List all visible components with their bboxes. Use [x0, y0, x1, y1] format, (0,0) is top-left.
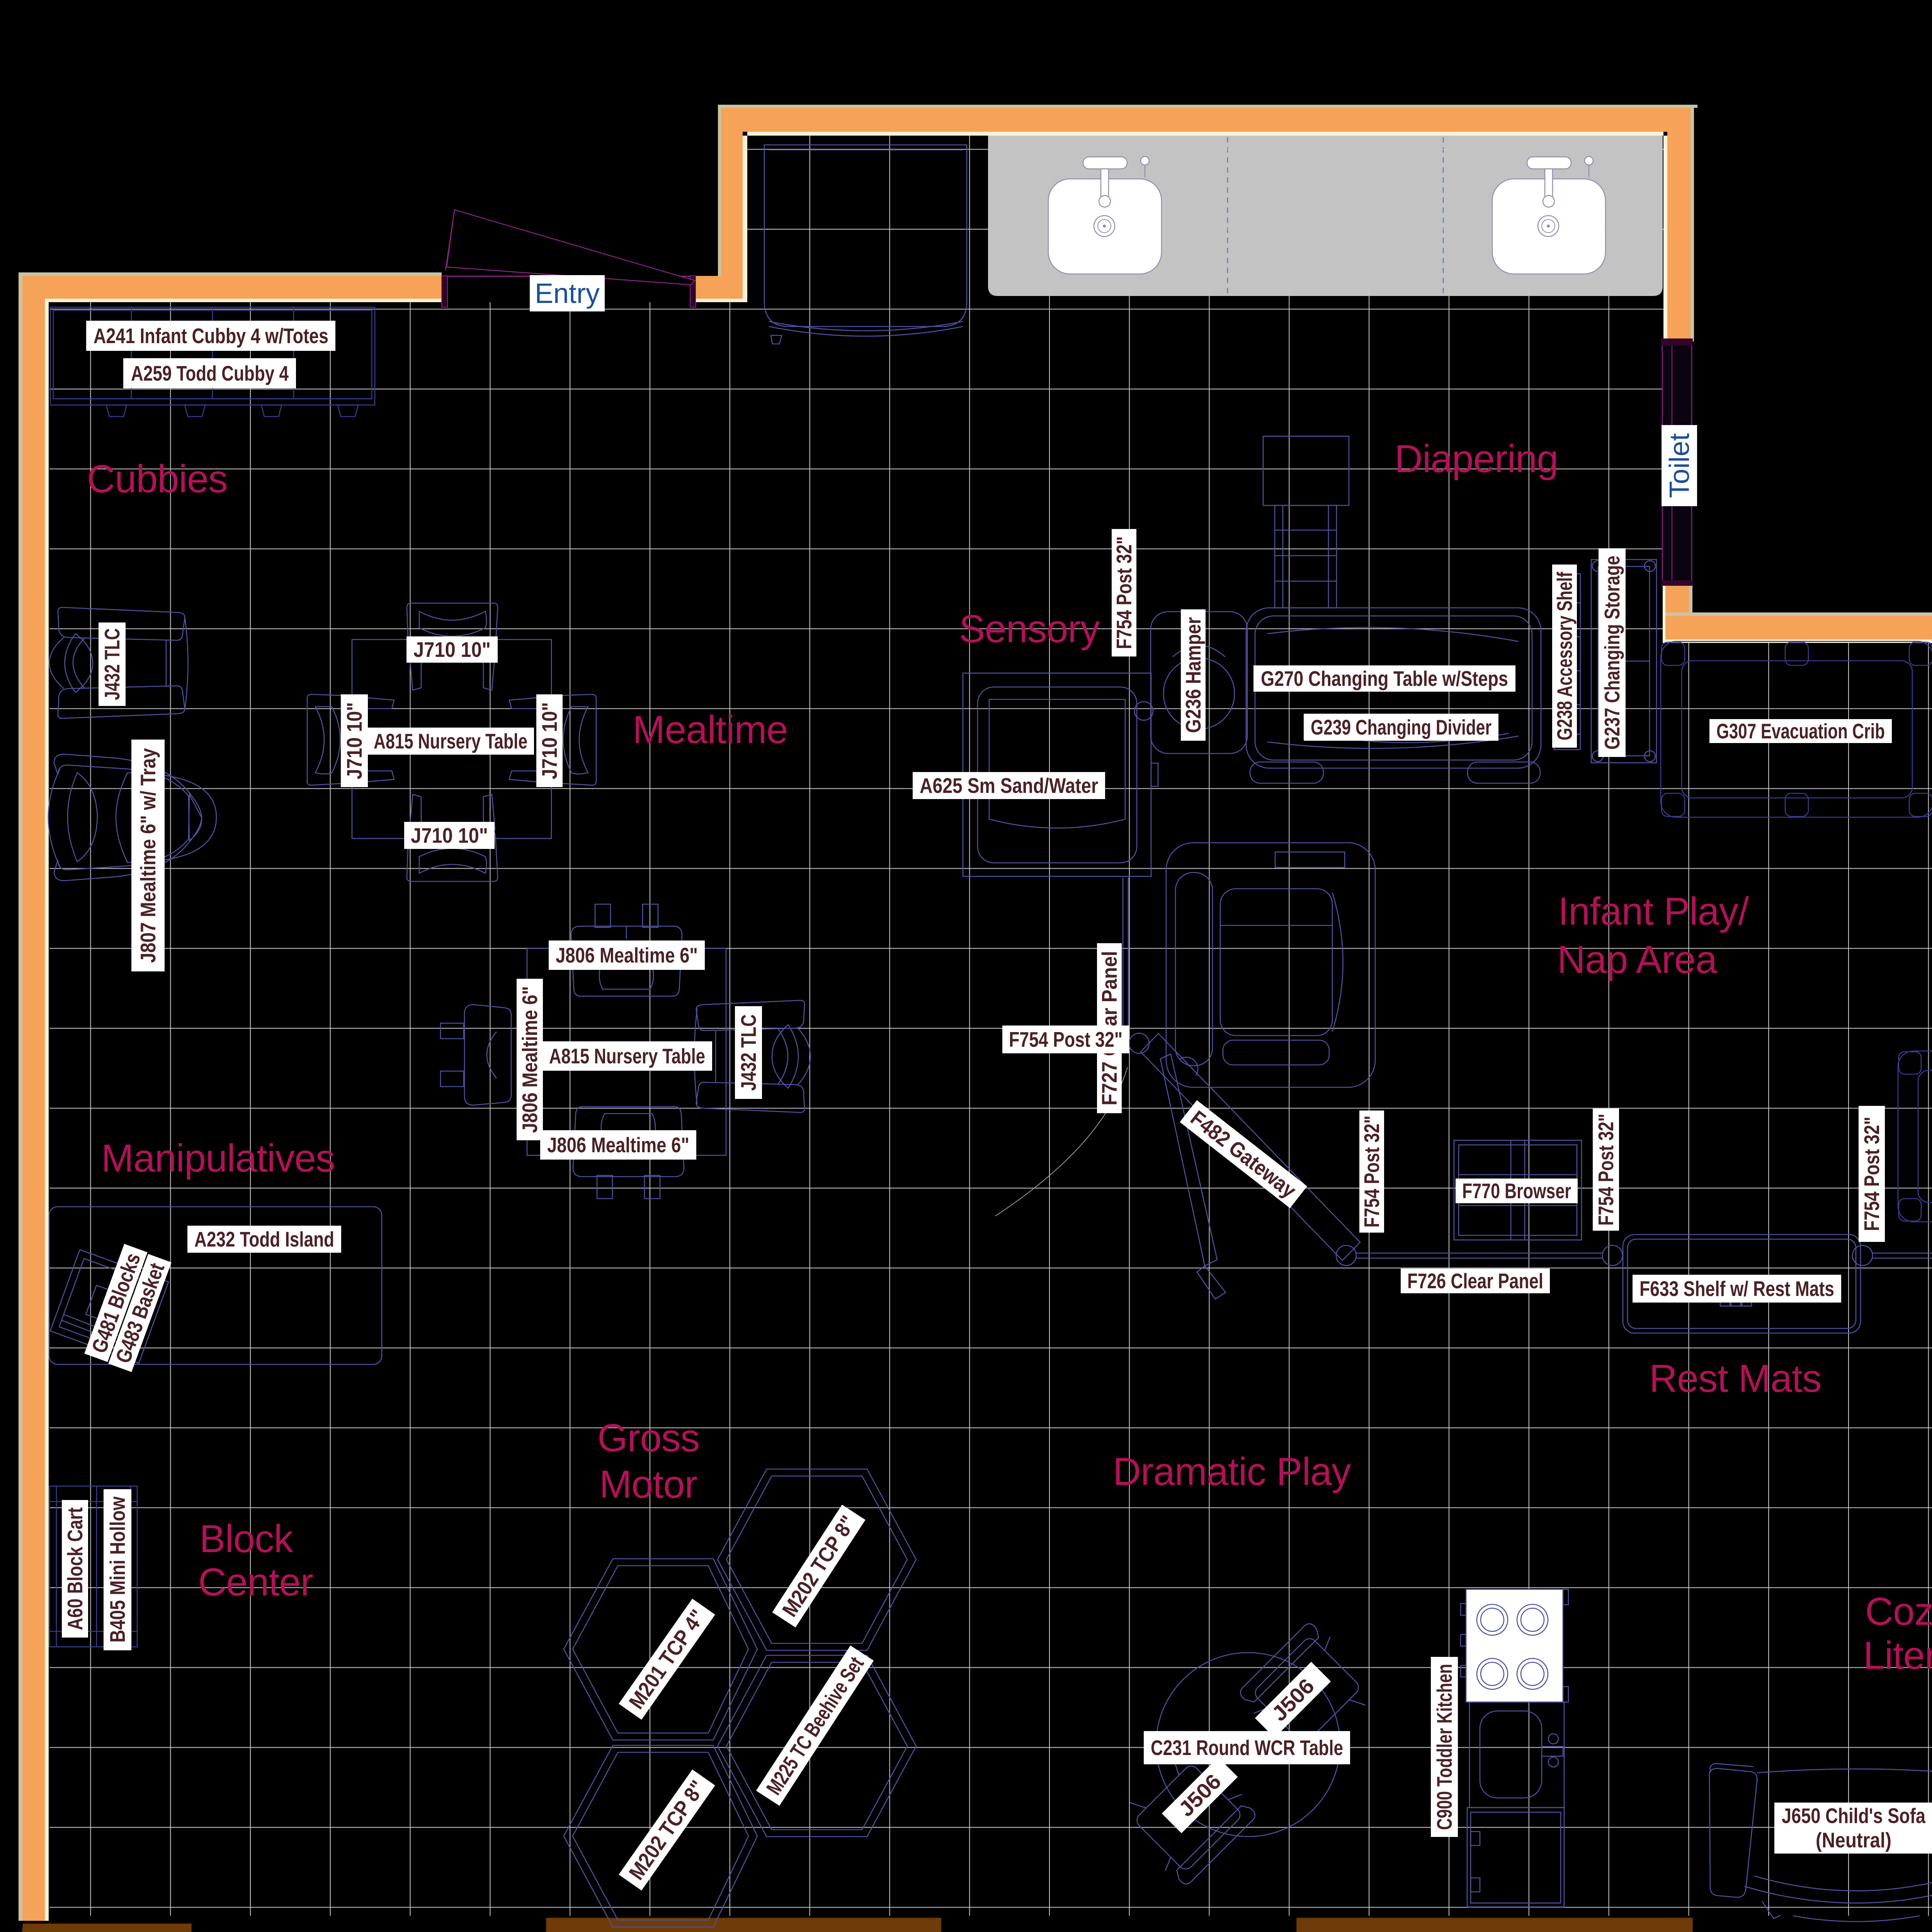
svg-text:J710 10": J710 10"	[342, 702, 366, 779]
svg-text:J650 Child's Sofa: J650 Child's Sofa	[1782, 1804, 1925, 1828]
svg-text:Literacy: Literacy	[1863, 1634, 1932, 1677]
svg-text:B405 Mini Hollow: B405 Mini Hollow	[105, 1497, 129, 1643]
svg-text:A241 Infant Cubby 4 w/Totes: A241 Infant Cubby 4 w/Totes	[94, 324, 328, 348]
svg-text:Rest Mats: Rest Mats	[1649, 1357, 1821, 1400]
svg-text:A259 Todd Cubby 4: A259 Todd Cubby 4	[131, 361, 289, 385]
svg-text:G239 Changing Divider: G239 Changing Divider	[1311, 715, 1492, 739]
svg-text:Sensory: Sensory	[959, 607, 1100, 651]
svg-text:Cubbies: Cubbies	[87, 457, 228, 501]
svg-text:Cozy/: Cozy/	[1865, 1590, 1932, 1633]
svg-text:Center: Center	[198, 1561, 313, 1604]
svg-text:J432 TLC: J432 TLC	[736, 1014, 760, 1091]
svg-text:F726 Clear Panel: F726 Clear Panel	[1407, 1269, 1543, 1293]
svg-text:F754 Post 32": F754 Post 32"	[1860, 1117, 1884, 1231]
svg-text:J710 10": J710 10"	[411, 823, 488, 847]
svg-text:A815 Nursery Table: A815 Nursery Table	[374, 729, 527, 753]
svg-text:Diapering: Diapering	[1395, 437, 1558, 481]
svg-text:G307 Evacuation Crib: G307 Evacuation Crib	[1716, 719, 1885, 743]
svg-text:C900 Toddler Kitchen: C900 Toddler Kitchen	[1432, 1664, 1456, 1830]
svg-text:C231 Round WCR Table: C231 Round WCR Table	[1151, 1736, 1343, 1760]
svg-text:A232 Todd Island: A232 Todd Island	[194, 1227, 334, 1251]
svg-text:A625 Sm Sand/Water: A625 Sm Sand/Water	[920, 774, 1098, 798]
svg-text:Mealtime: Mealtime	[633, 708, 788, 752]
svg-text:G270 Changing Table w/Steps: G270 Changing Table w/Steps	[1261, 667, 1508, 690]
svg-text:J432 TLC: J432 TLC	[100, 628, 124, 700]
svg-text:J806 Mealtime 6": J806 Mealtime 6"	[556, 943, 698, 967]
svg-text:J710 10": J710 10"	[537, 702, 561, 779]
svg-text:A815 Nursery Table: A815 Nursery Table	[549, 1044, 705, 1068]
svg-text:Dramatic Play: Dramatic Play	[1113, 1450, 1351, 1493]
svg-text:A60 Block Cart: A60 Block Cart	[63, 1507, 87, 1630]
svg-text:G237 Changing Storage: G237 Changing Storage	[1600, 556, 1624, 750]
svg-text:Motor: Motor	[599, 1463, 697, 1506]
svg-text:Infant Play/: Infant Play/	[1558, 890, 1749, 933]
svg-text:J806 Mealtime 6": J806 Mealtime 6"	[547, 1133, 689, 1157]
svg-text:J806 Mealtime 6": J806 Mealtime 6"	[518, 986, 542, 1133]
svg-text:F754 Post 32": F754 Post 32"	[1360, 1116, 1384, 1228]
svg-text:Gross: Gross	[597, 1417, 699, 1460]
svg-text:Manipulatives: Manipulatives	[101, 1137, 335, 1180]
svg-text:F633 Shelf w/ Rest Mats: F633 Shelf w/ Rest Mats	[1639, 1277, 1834, 1301]
svg-text:G236 Hamper: G236 Hamper	[1181, 617, 1205, 733]
svg-text:F754 Post 32": F754 Post 32"	[1112, 536, 1136, 649]
svg-text:Nap Area: Nap Area	[1557, 938, 1718, 981]
svg-text:F770 Browser: F770 Browser	[1462, 1179, 1571, 1203]
svg-text:J710 10": J710 10"	[413, 638, 491, 662]
svg-text:(Neutral): (Neutral)	[1816, 1828, 1891, 1852]
svg-text:F754 Post 32": F754 Post 32"	[1594, 1114, 1618, 1226]
svg-text:G238 Accessory Shelf: G238 Accessory Shelf	[1553, 571, 1577, 740]
svg-text:F754 Post 32": F754 Post 32"	[1009, 1027, 1122, 1051]
svg-text:Toilet: Toilet	[1664, 433, 1695, 498]
svg-text:J807 Mealtime 6" w/ Tray: J807 Mealtime 6" w/ Tray	[136, 748, 160, 963]
svg-text:Entry: Entry	[535, 278, 600, 309]
svg-text:Block: Block	[199, 1517, 293, 1561]
